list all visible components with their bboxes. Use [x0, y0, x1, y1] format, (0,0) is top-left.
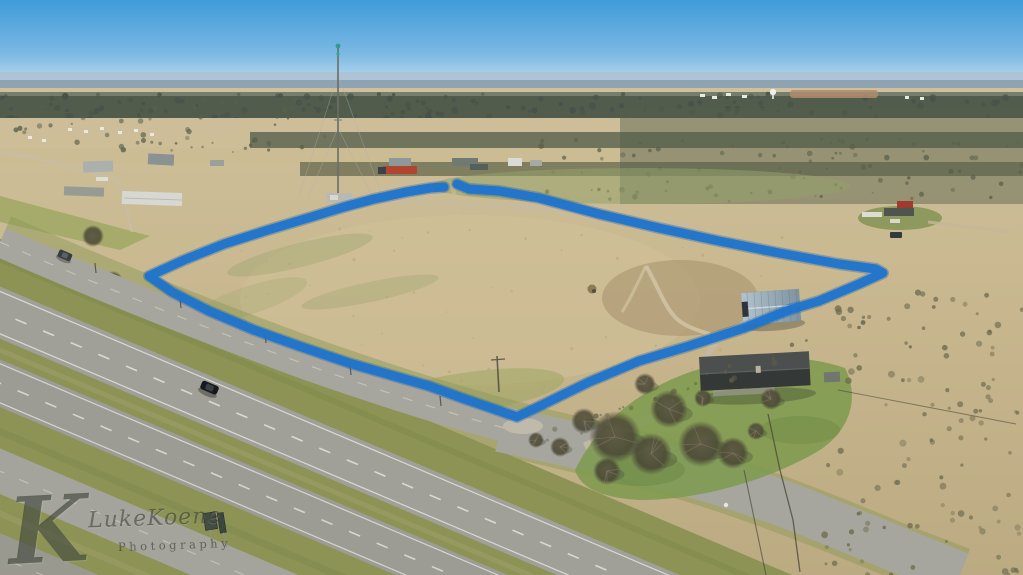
small-shed — [824, 372, 841, 383]
aerial-photo: K LukeKoene Photography — [0, 0, 1023, 575]
white-cow — [724, 503, 728, 507]
aerial-photo-canvas — [0, 0, 1023, 575]
